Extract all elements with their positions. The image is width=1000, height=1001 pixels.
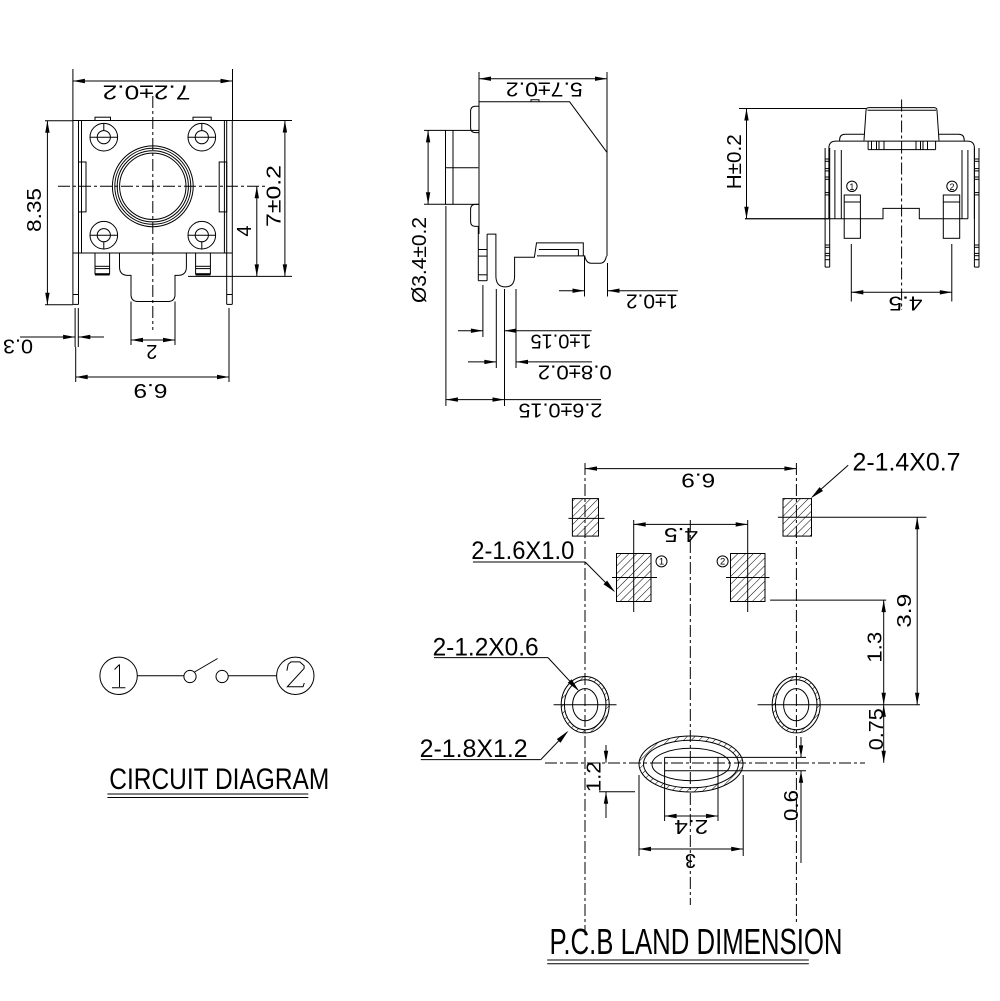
svg-text:1.2: 1.2 (583, 761, 605, 792)
svg-text:0.75: 0.75 (866, 708, 888, 750)
svg-text:H±0.2: H±0.2 (724, 134, 746, 189)
svg-text:2-1.6X1.0: 2-1.6X1.0 (471, 537, 574, 565)
svg-text:3: 3 (685, 849, 696, 871)
svg-text:4.5: 4.5 (889, 292, 923, 314)
svg-text:7±0.2: 7±0.2 (264, 165, 286, 227)
svg-text:0.8±0.2: 0.8±0.2 (538, 360, 612, 382)
svg-text:4.5: 4.5 (664, 523, 698, 545)
svg-text:4: 4 (234, 225, 256, 236)
svg-text:3.9: 3.9 (894, 594, 916, 628)
svg-text:2.4: 2.4 (674, 815, 708, 837)
svg-text:2: 2 (146, 340, 157, 362)
svg-text:6.9: 6.9 (134, 379, 168, 401)
svg-text:1.3: 1.3 (864, 632, 886, 663)
svg-text:1±0.15: 1±0.15 (531, 330, 592, 352)
svg-text:P.C.B LAND DIMENSION: P.C.B LAND DIMENSION (550, 921, 843, 962)
svg-text:6.9: 6.9 (681, 469, 715, 491)
svg-text:2-1.8X1.2: 2-1.8X1.2 (420, 735, 528, 763)
svg-text:2-1.4X0.7: 2-1.4X0.7 (853, 449, 961, 477)
svg-text:0.3: 0.3 (3, 335, 33, 357)
svg-text:7.2±0.2: 7.2±0.2 (103, 81, 191, 103)
svg-text:8.35: 8.35 (24, 188, 46, 232)
svg-text:Ø3.4±0.2: Ø3.4±0.2 (409, 217, 431, 303)
svg-text:1: 1 (659, 556, 664, 567)
svg-text:CIRCUIT DIAGRAM: CIRCUIT DIAGRAM (109, 763, 329, 796)
svg-text:1: 1 (849, 182, 854, 192)
svg-text:0.6: 0.6 (781, 790, 803, 821)
svg-text:5.7±0.2: 5.7±0.2 (506, 77, 583, 99)
svg-text:2: 2 (949, 182, 954, 192)
svg-text:2: 2 (720, 556, 725, 567)
svg-text:2.6±0.15: 2.6±0.15 (518, 399, 602, 421)
svg-text:1±0.2: 1±0.2 (626, 290, 678, 312)
